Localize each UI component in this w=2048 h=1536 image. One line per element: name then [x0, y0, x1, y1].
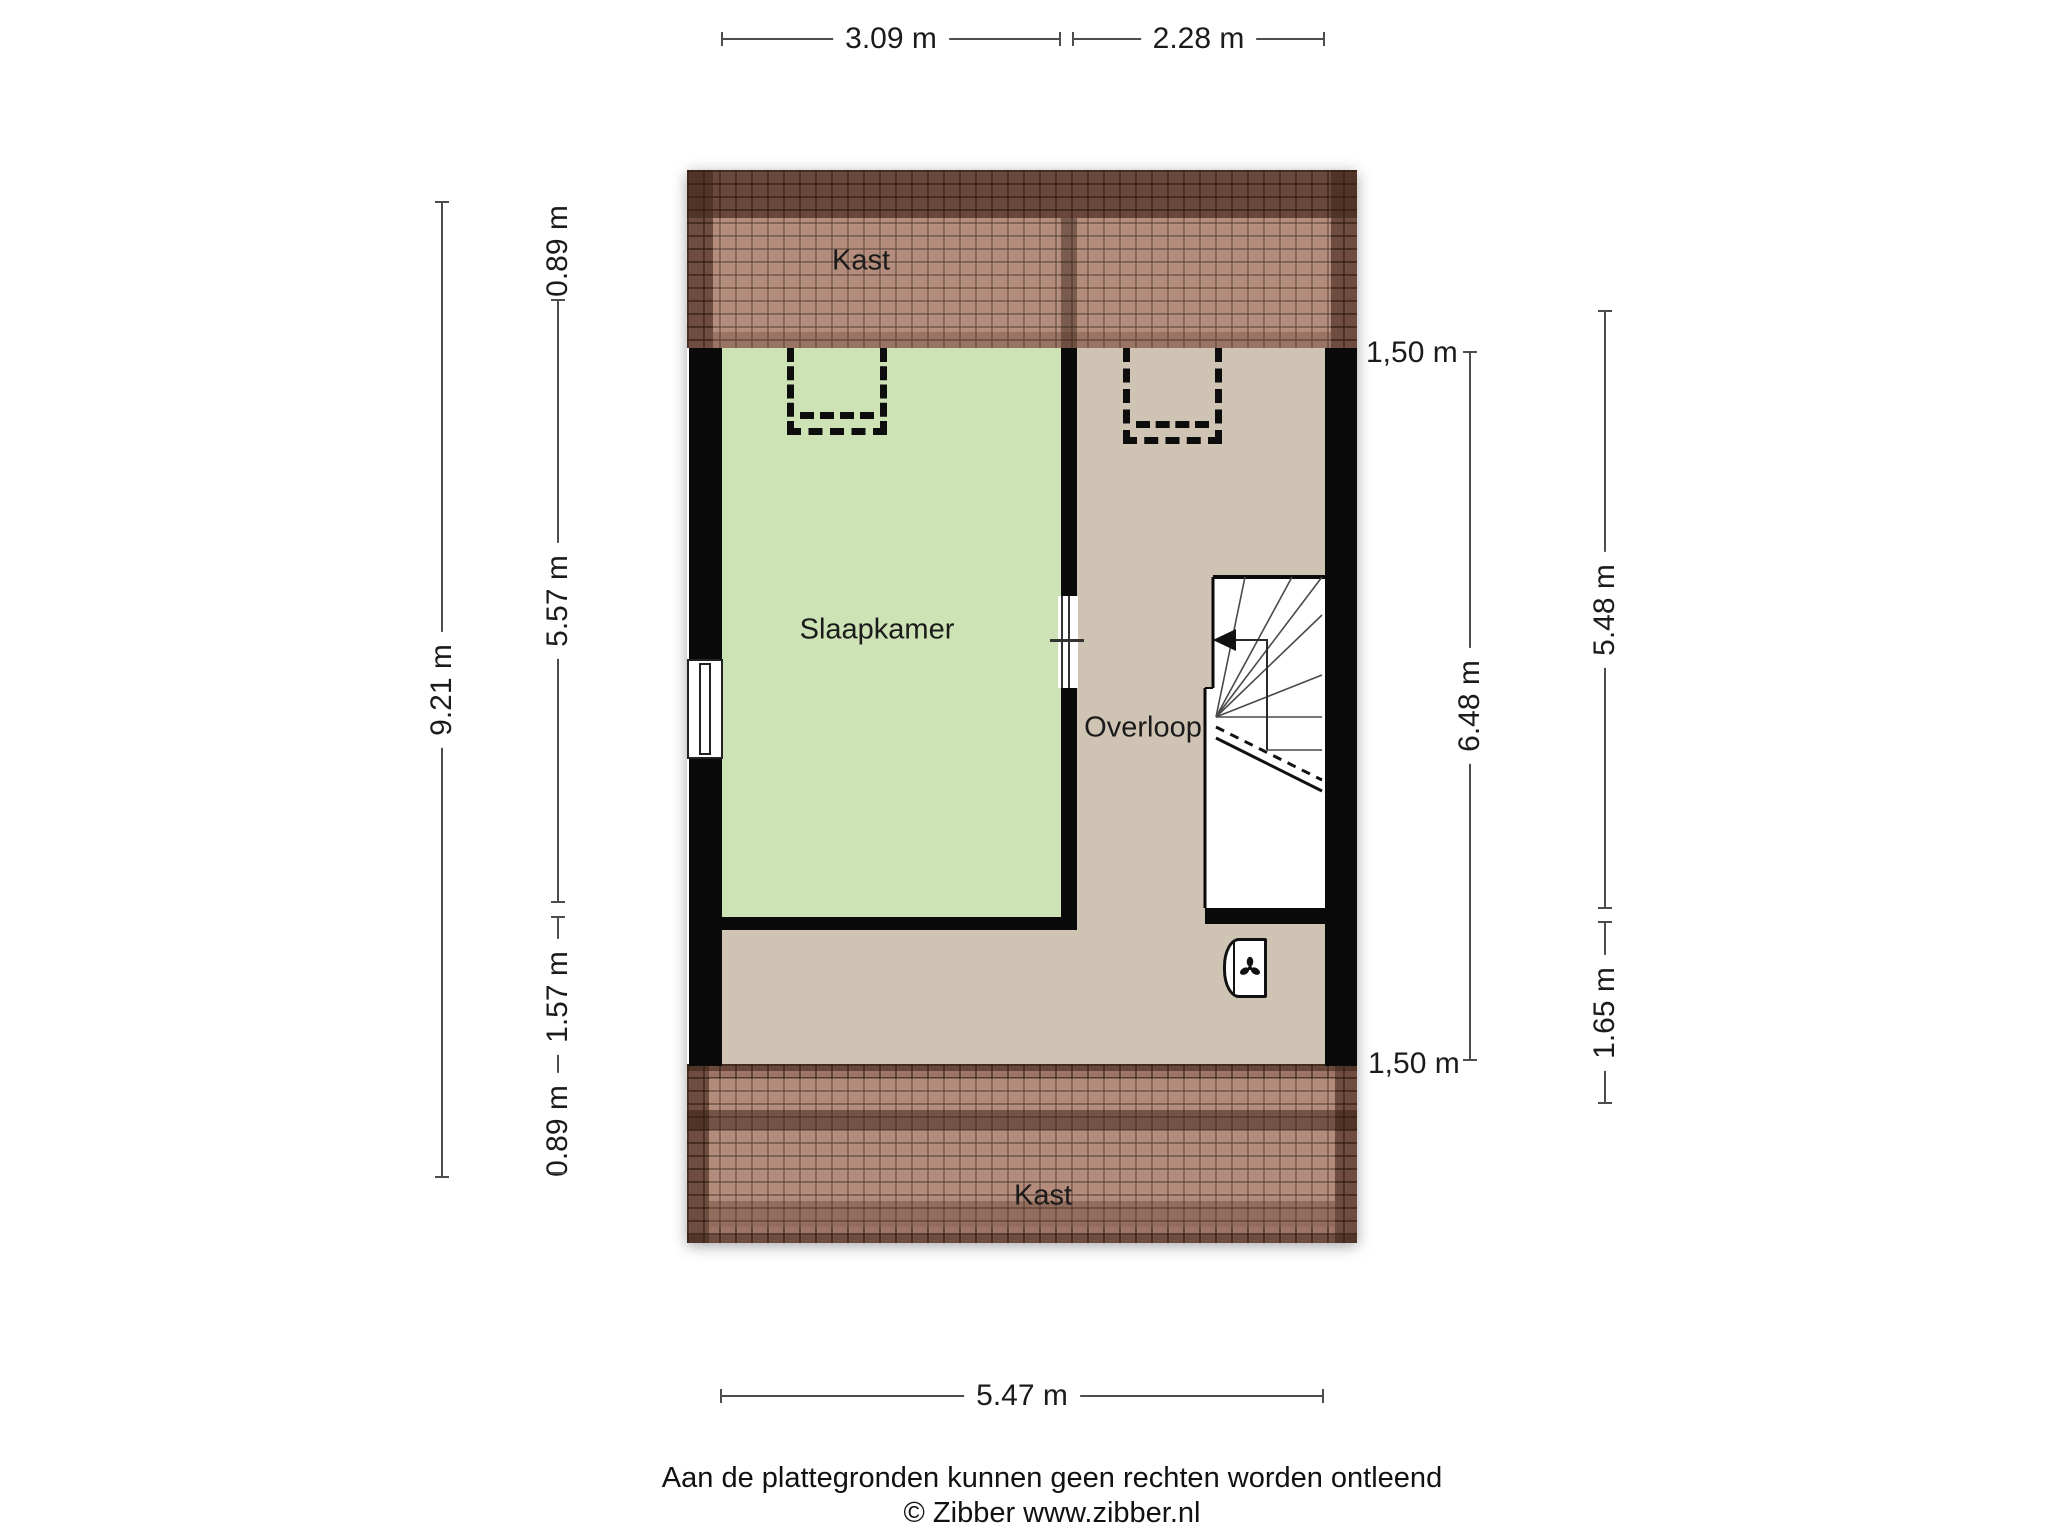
- door-threshold-line: [1050, 639, 1084, 642]
- dim-left-south: 1.57 m: [557, 917, 559, 1077]
- roof-dark-band: [687, 1110, 1357, 1130]
- dim-label: 0.89 m: [541, 1073, 575, 1189]
- room-label-kast-top: Kast: [832, 245, 890, 278]
- dim-label: 6.48 m: [1453, 648, 1487, 764]
- roof-light-field: [713, 218, 1331, 348]
- dim-bottom: 5.47 m: [721, 1395, 1323, 1397]
- footer-copyright: © Zibber www.zibber.nl: [0, 1497, 2048, 1530]
- ventilation-unit-line: [1233, 942, 1235, 994]
- ventilation-unit: [1223, 938, 1267, 998]
- window: [687, 659, 723, 759]
- dormer-outline-left: [787, 348, 887, 435]
- roof-band-top: [687, 170, 1357, 348]
- dim-right-inner: 6.48 m: [1469, 352, 1471, 1060]
- roof-band-bottom: [687, 1064, 1357, 1243]
- dim-label: 1.57 m: [541, 939, 575, 1055]
- dim-label: 5.47 m: [964, 1379, 1080, 1413]
- dim-top-2: 2.28 m: [1073, 38, 1324, 40]
- height-line-label-top: 1,50 m: [1366, 336, 1458, 370]
- dim-label: 3.09 m: [833, 22, 949, 56]
- stairs-bottom-wall: [1205, 908, 1327, 924]
- floor-plan-canvas: Kast Slaapkamer Overloop Kast 3.09 m 2.2…: [0, 0, 2048, 1536]
- dim-label: 5.48 m: [1588, 552, 1622, 668]
- dim-left-bedroom: 5.57 m: [557, 300, 559, 902]
- fan-icon: [1236, 954, 1264, 982]
- room-label-kast-bottom: Kast: [1014, 1180, 1072, 1213]
- stairs-floor: [1213, 577, 1325, 908]
- height-line-label-bottom: 1,50 m: [1368, 1047, 1460, 1081]
- dim-label: 1.65 m: [1588, 955, 1622, 1071]
- wall-interior-lower: [1061, 687, 1077, 930]
- dim-right-outer-south: 1.65 m: [1604, 922, 1606, 1103]
- stairs: [1203, 570, 1327, 926]
- dim-left-roof-top: 0.89 m: [557, 202, 559, 300]
- footer-disclaimer: Aan de plattegronden kunnen geen rechten…: [0, 1462, 2048, 1495]
- roof-top-edge-shade: [687, 1064, 1357, 1071]
- roof-bottom-edge-shade: [687, 1235, 1357, 1243]
- dim-label: 5.57 m: [541, 543, 575, 659]
- wall-interior-upper: [1061, 348, 1077, 597]
- roof-side-shade-right: [1331, 170, 1357, 348]
- roof-ridge-shade: [687, 170, 1357, 218]
- dim-left-roof-bottom: 0.89 m: [557, 1088, 559, 1173]
- room-label-overloop: Overloop: [1084, 712, 1202, 745]
- dim-label: 9.21 m: [425, 632, 459, 748]
- roof-side-shade-left: [687, 170, 713, 348]
- dim-label: 2.28 m: [1141, 22, 1257, 56]
- dormer-outline-right: [1123, 348, 1222, 444]
- dim-right-outer-main: 5.48 m: [1604, 311, 1606, 908]
- room-label-slaapkamer: Slaapkamer: [800, 614, 955, 647]
- roof-side-shade-left: [687, 1064, 709, 1243]
- wall-bedroom-bottom: [722, 917, 1077, 930]
- dim-top-1: 3.09 m: [722, 38, 1060, 40]
- roof-eave-shade: [713, 332, 1331, 348]
- dim-label: 0.89 m: [541, 193, 575, 309]
- dormer-inner-line: [800, 412, 874, 419]
- roof-side-shade-right: [1335, 1064, 1357, 1243]
- dim-left-outer: 9.21 m: [441, 202, 443, 1177]
- door-frame: [1061, 596, 1070, 688]
- roof-wall-shadow: [1061, 218, 1077, 348]
- window-pane: [699, 663, 711, 755]
- dormer-inner-line: [1136, 421, 1209, 428]
- wall-right: [1325, 348, 1357, 1066]
- door-opening: [1058, 596, 1078, 688]
